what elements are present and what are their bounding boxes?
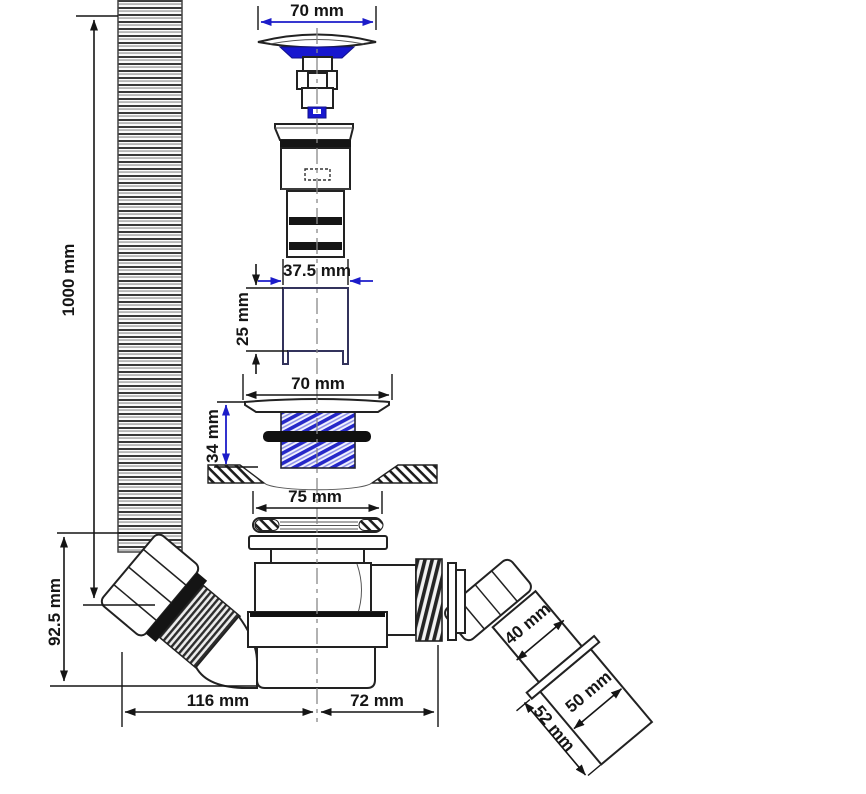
tray-left-section <box>208 465 264 483</box>
bath-waste-drawing: 70 mm 1000 mm 37.5 mm 25 mm 70 mm 34 mm <box>0 0 866 794</box>
dim-tail-width-label: 37.5 mm <box>283 261 351 280</box>
dim-base-left-label: 116 mm <box>187 691 249 710</box>
adjuster-sleeve <box>283 288 348 364</box>
dim-adjuster-height-label: 25 mm <box>233 292 252 346</box>
dim-base-right-label: 72 mm <box>350 691 404 710</box>
trap-outlet-threads <box>416 559 442 641</box>
dim-flange-height: 34 mm <box>203 402 258 467</box>
washer-left-end <box>255 520 279 531</box>
trap-bottom-cup <box>257 647 375 688</box>
dim-outlet-length-ext-top <box>517 700 531 711</box>
outlet-washer-inner <box>456 570 465 633</box>
waste-body <box>275 124 353 257</box>
outlet-washer-outer <box>448 563 456 640</box>
waste-body-oring-mid <box>289 217 342 225</box>
dim-tail-width: 37.5 mm <box>258 259 373 285</box>
waste-body-rim <box>275 124 353 140</box>
dim-hose-length-label: 1000 mm <box>59 244 78 317</box>
trap-top-flange <box>249 536 387 549</box>
adjuster-sleeve-outline <box>283 288 348 364</box>
washer-right-end <box>359 520 383 531</box>
hose-body <box>118 0 182 552</box>
dim-flange-diameter-label: 70 mm <box>291 374 345 393</box>
dim-plug-diameter-label: 70 mm <box>290 1 344 20</box>
trap-body <box>248 536 442 688</box>
dim-plug-diameter: 70 mm <box>258 1 376 30</box>
waste-body-oring-bottom <box>289 242 342 250</box>
trap-main-body <box>255 563 371 617</box>
dim-flange-height-label: 34 mm <box>203 409 222 463</box>
dim-inlet-height-label: 92.5 mm <box>45 578 64 646</box>
waste-body-oring-top <box>280 140 351 148</box>
pop-up-plug <box>258 35 376 119</box>
dim-seal-diameter-label: 75 mm <box>288 487 342 506</box>
tray-right-section <box>372 465 437 483</box>
dim-outlet-length-ext-bottom <box>588 765 601 776</box>
technical-diagram: 70 mm 1000 mm 37.5 mm 25 mm 70 mm 34 mm <box>0 0 866 794</box>
corrugated-hose <box>118 0 182 552</box>
sealing-washer <box>253 518 383 532</box>
